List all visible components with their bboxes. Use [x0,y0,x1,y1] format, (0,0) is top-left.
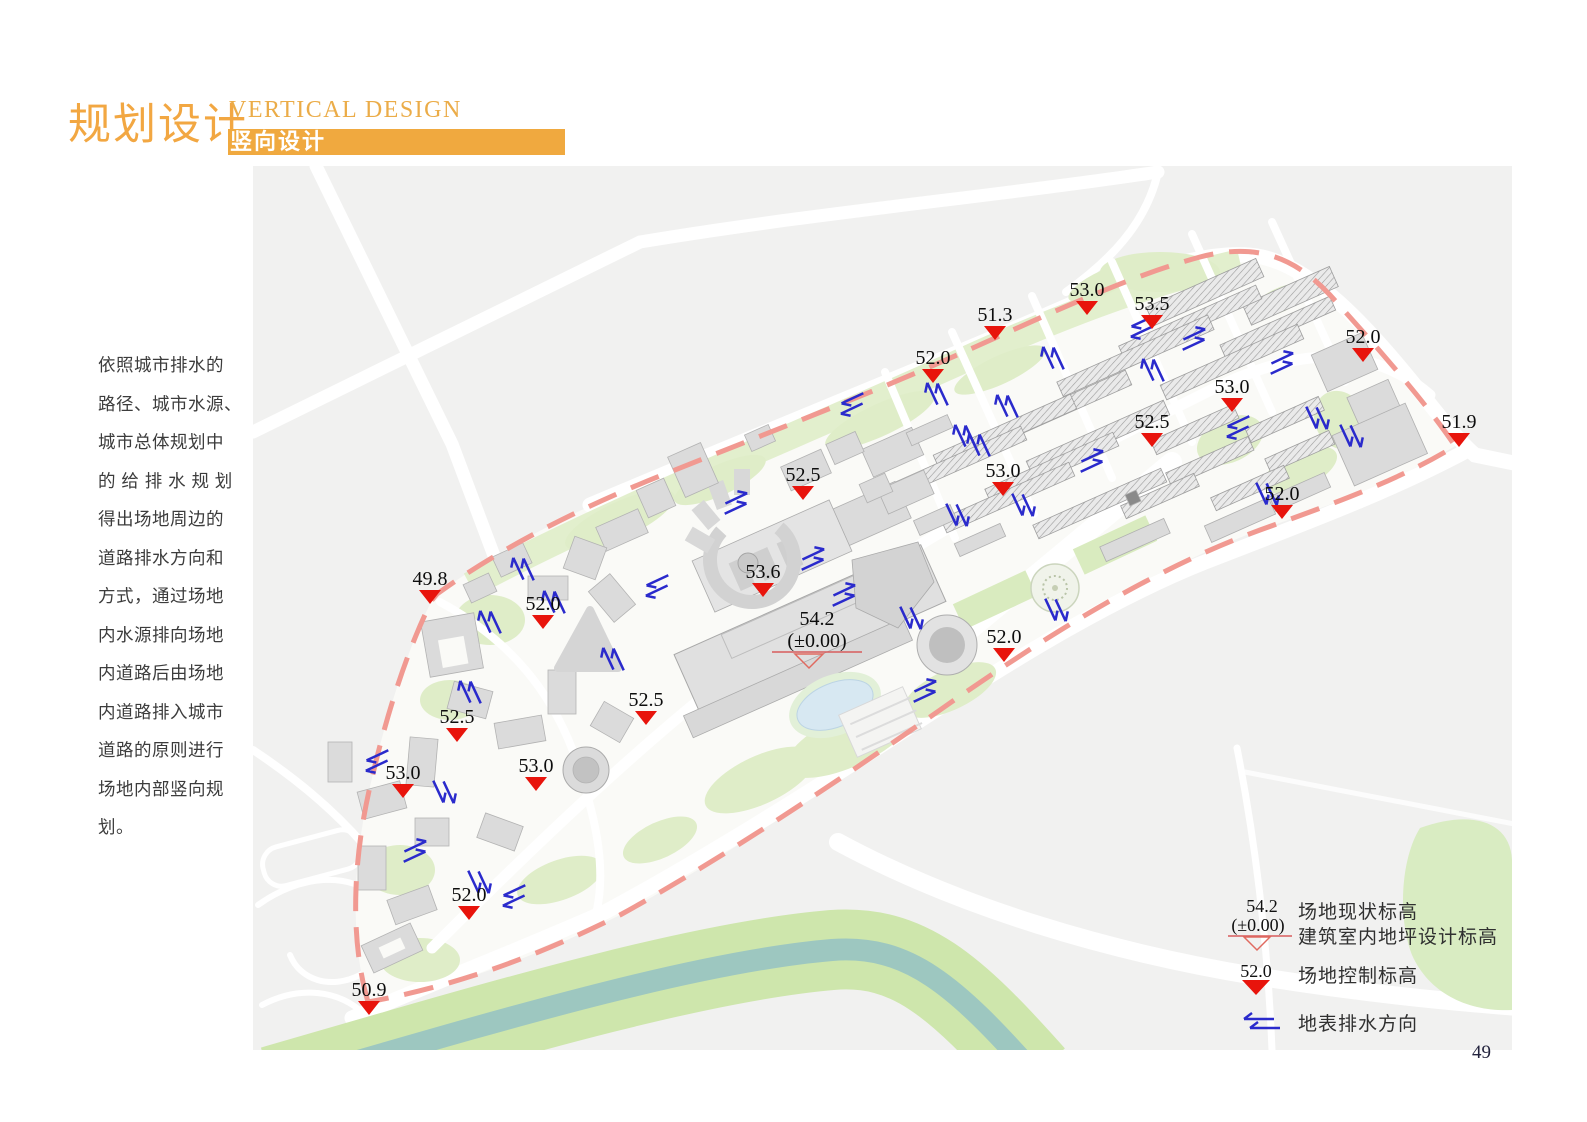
drain-arrow-icon [1222,1010,1298,1038]
svg-text:53.0: 53.0 [986,460,1021,482]
intro-paragraph: 依照城市排水的 路径、城市水源、 城市总体规划中 的 给 排 水 规 划 得出场… [98,346,258,847]
svg-text:51.9: 51.9 [1442,411,1477,433]
legend-label: 地表排水方向 [1298,1010,1418,1037]
svg-text:51.3: 51.3 [978,304,1013,326]
svg-text:53.0: 53.0 [519,755,554,777]
svg-text:(±0.00): (±0.00) [787,630,846,652]
legend-item-existing-elevation: 54.2 (±0.00) 场地现状标高 建筑室内地坪设计标高 [1222,898,1532,954]
legend-item-drainage-direction: 地表排水方向 [1222,1010,1532,1038]
svg-text:53.0: 53.0 [386,762,421,784]
legend-label: 场地控制标高 [1298,962,1418,989]
control-marker-icon: 52.0 [1222,962,1298,1000]
svg-text:52.0: 52.0 [1346,326,1381,348]
section-subtitle-en: VERTICAL DESIGN [229,98,462,122]
map-legend: 54.2 (±0.00) 场地现状标高 建筑室内地坪设计标高 52.0 场地控制… [1222,898,1532,1046]
svg-text:53.0: 53.0 [1070,279,1105,301]
svg-text:53.0: 53.0 [1215,376,1250,398]
datum-marker-icon: 54.2 (±0.00) [1222,898,1298,954]
page-title: 规划设计 [68,104,248,147]
svg-text:52.5: 52.5 [440,706,475,728]
svg-text:54.2: 54.2 [1246,898,1278,916]
svg-text:(±0.00): (±0.00) [1231,915,1284,936]
svg-text:49.8: 49.8 [413,568,448,590]
legend-label: 场地现状标高 建筑室内地坪设计标高 [1298,898,1498,950]
section-title-bar: 竖向设计 [228,129,565,155]
svg-text:52.0: 52.0 [1265,483,1300,505]
section-subtitle-cn: 竖向设计 [228,129,565,155]
svg-text:52.5: 52.5 [629,689,664,711]
svg-text:53.6: 53.6 [746,561,781,583]
svg-text:52.0: 52.0 [452,884,487,906]
svg-text:52.0: 52.0 [987,626,1022,648]
page-number: 49 [1472,1042,1491,1064]
svg-text:53.5: 53.5 [1135,293,1170,315]
svg-text:52.0: 52.0 [1240,962,1272,981]
svg-text:52.0: 52.0 [916,347,951,369]
svg-text:52.0: 52.0 [526,593,561,615]
svg-text:50.9: 50.9 [352,979,387,1001]
svg-text:52.5: 52.5 [1135,411,1170,433]
document-page: { "header": { "title_cn": "规划设计", "subti… [0,0,1587,1122]
legend-item-control-elevation: 52.0 场地控制标高 [1222,962,1532,1000]
svg-text:54.2: 54.2 [800,608,835,630]
svg-text:52.5: 52.5 [786,464,821,486]
